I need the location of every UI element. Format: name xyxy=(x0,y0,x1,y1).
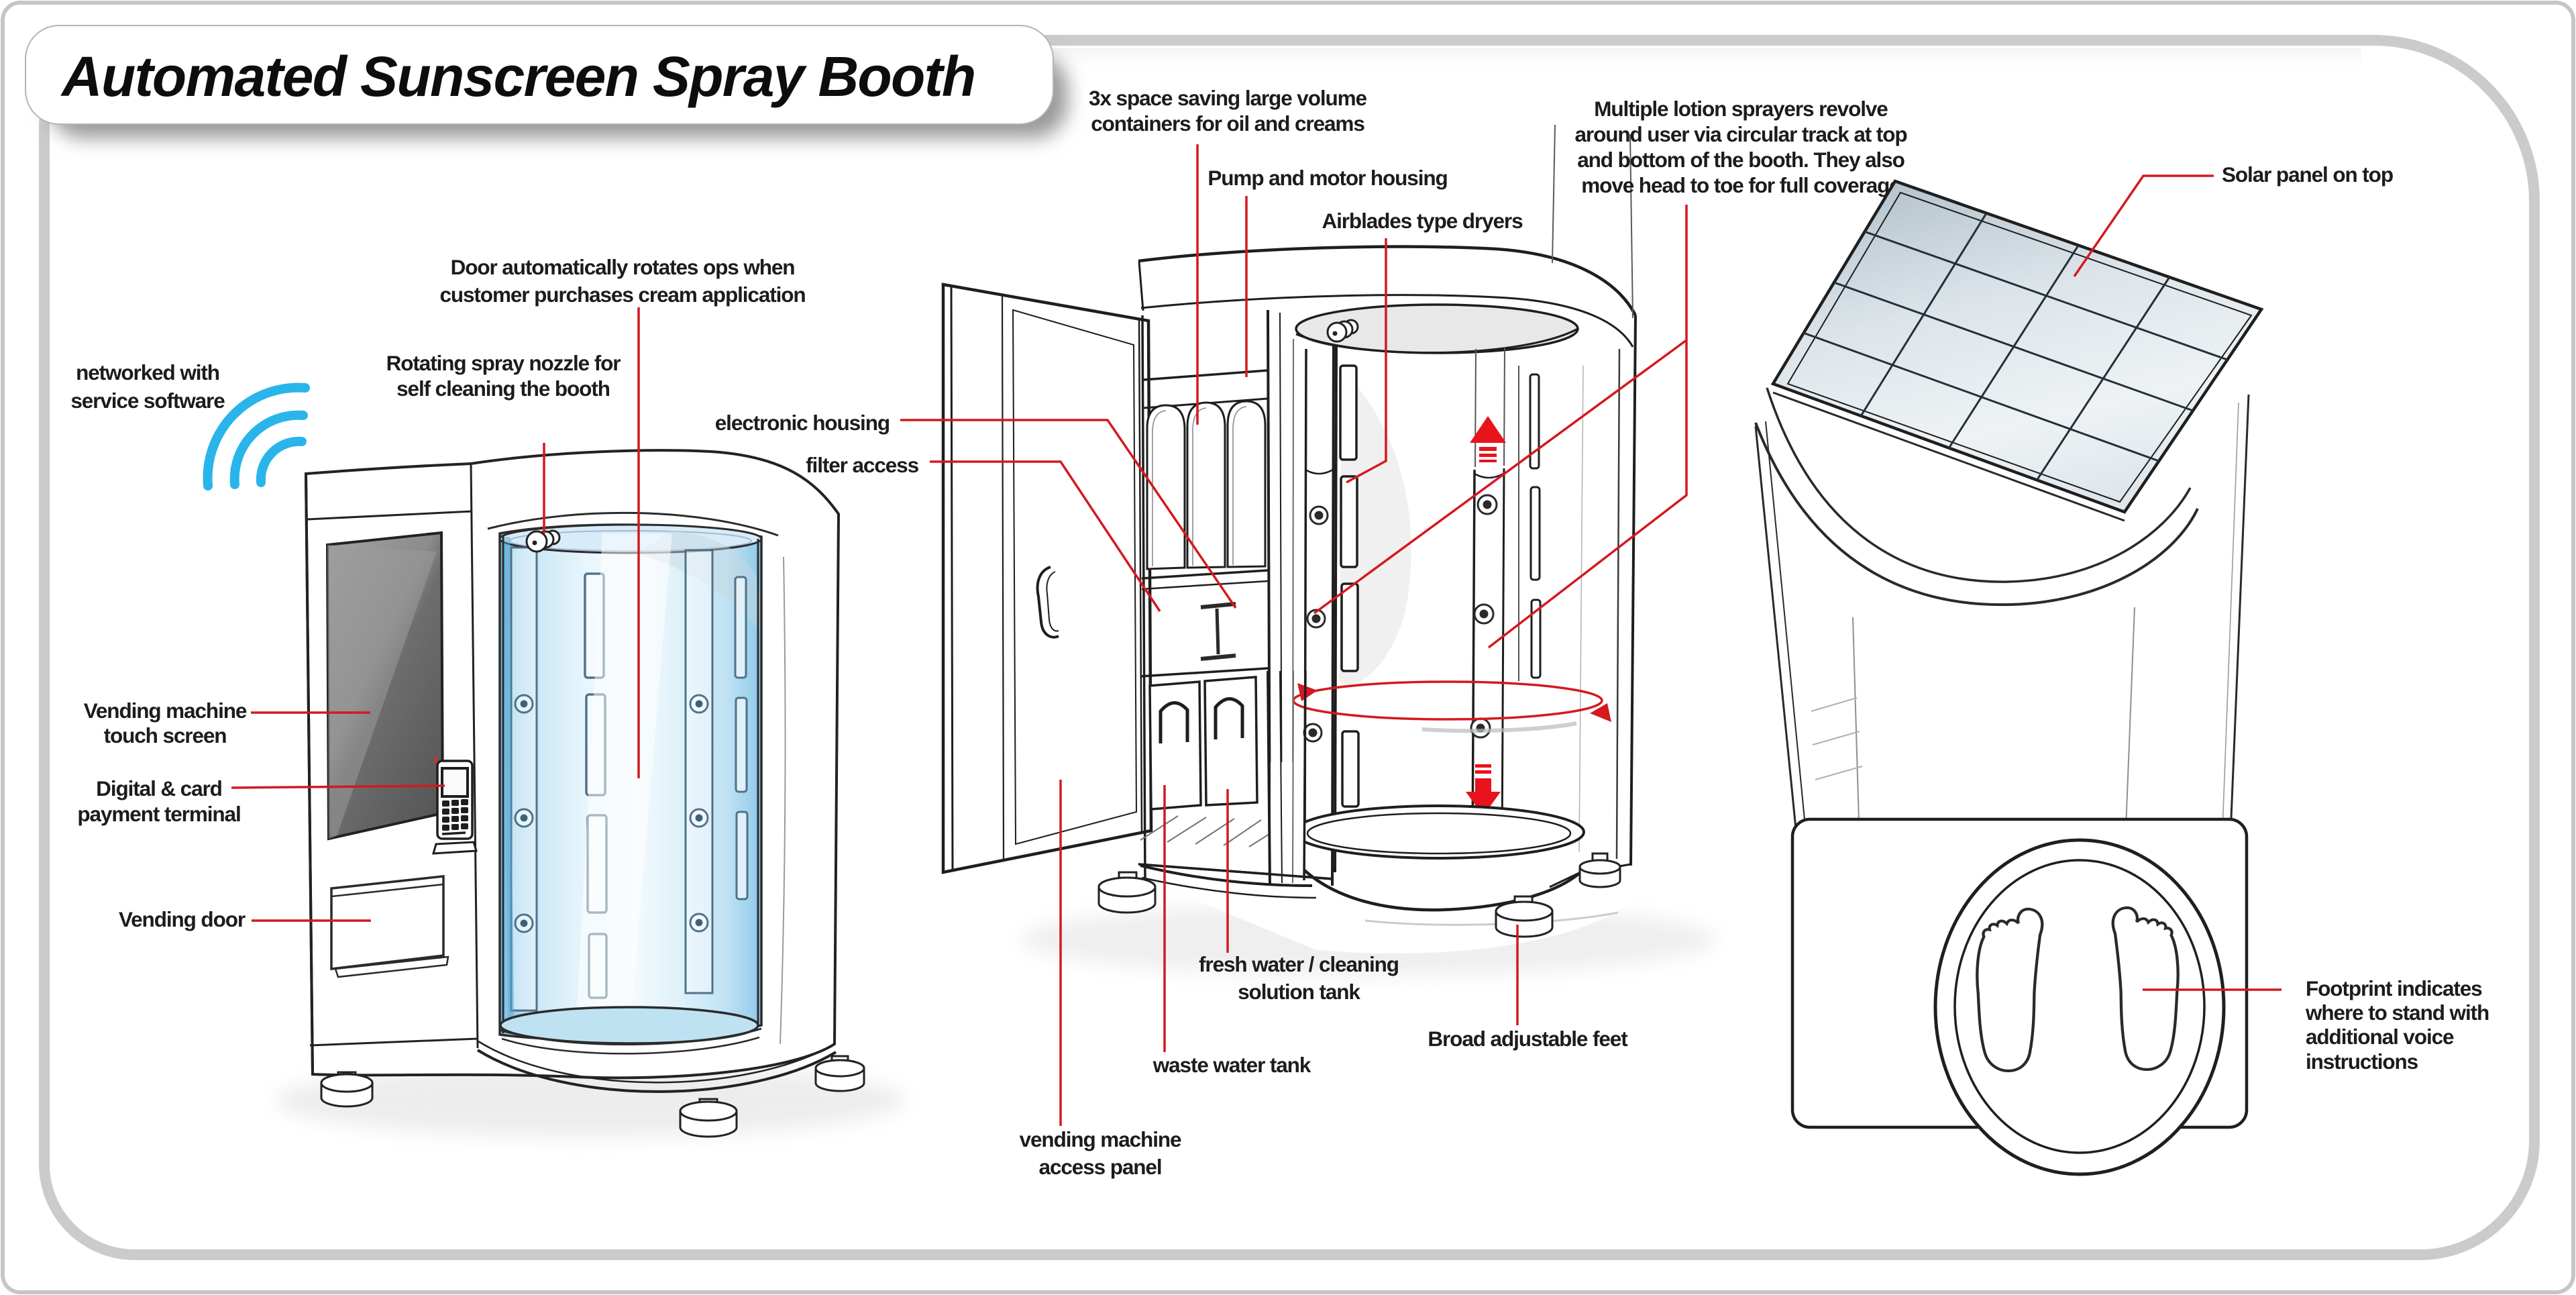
svg-text:service software: service software xyxy=(70,389,225,413)
svg-text:around user via circular track: around user via circular track at top xyxy=(1575,122,1907,146)
svg-text:additional voice: additional voice xyxy=(2306,1025,2454,1049)
svg-text:Footprint indicates: Footprint indicates xyxy=(2306,976,2482,1000)
svg-text:filter access: filter access xyxy=(806,453,918,477)
svg-text:vending machine: vending machine xyxy=(1020,1127,1181,1151)
svg-text:where to stand with: where to stand with xyxy=(2305,1000,2489,1025)
svg-text:solution tank: solution tank xyxy=(1238,980,1360,1004)
svg-text:touch screen: touch screen xyxy=(104,723,227,747)
svg-text:electronic housing: electronic housing xyxy=(715,411,890,435)
svg-text:Broad adjustable feet: Broad adjustable feet xyxy=(1428,1027,1628,1051)
svg-text:fresh water / cleaning: fresh water / cleaning xyxy=(1199,952,1399,976)
svg-text:containers for oil and creams: containers for oil and creams xyxy=(1091,111,1364,136)
svg-text:Solar panel on top: Solar panel on top xyxy=(2222,162,2393,187)
svg-text:networked with: networked with xyxy=(76,360,219,384)
svg-text:customer purchases cream appli: customer purchases cream application xyxy=(439,282,805,307)
svg-text:Door automatically rotates ops: Door automatically rotates ops when xyxy=(451,255,795,279)
svg-text:Digital & card: Digital & card xyxy=(96,776,222,800)
svg-text:3x space saving large volume: 3x space saving large volume xyxy=(1089,86,1367,110)
svg-text:move head to toe for full cove: move head to toe for full coverage xyxy=(1581,173,1900,197)
svg-text:Airblades type dryers: Airblades type dryers xyxy=(1322,209,1523,233)
svg-text:and bottom of the booth. They: and bottom of the booth. They also xyxy=(1577,148,1904,172)
svg-text:Vending machine: Vending machine xyxy=(84,698,247,723)
svg-text:payment terminal: payment terminal xyxy=(77,802,240,826)
svg-text:waste water tank: waste water tank xyxy=(1152,1053,1311,1077)
svg-text:instructions: instructions xyxy=(2306,1049,2418,1074)
svg-text:Pump and motor housing: Pump and motor housing xyxy=(1207,166,1447,190)
svg-text:self cleaning the booth: self cleaning the booth xyxy=(396,376,610,401)
svg-text:access panel: access panel xyxy=(1039,1155,1162,1179)
svg-text:Automated Sunscreen Spray Boot: Automated Sunscreen Spray Booth xyxy=(60,45,975,108)
svg-text:Multiple lotion sprayers revol: Multiple lotion sprayers revolve xyxy=(1594,97,1888,121)
svg-text:Rotating spray nozzle for: Rotating spray nozzle for xyxy=(386,351,621,375)
svg-text:Vending door: Vending door xyxy=(119,907,246,931)
